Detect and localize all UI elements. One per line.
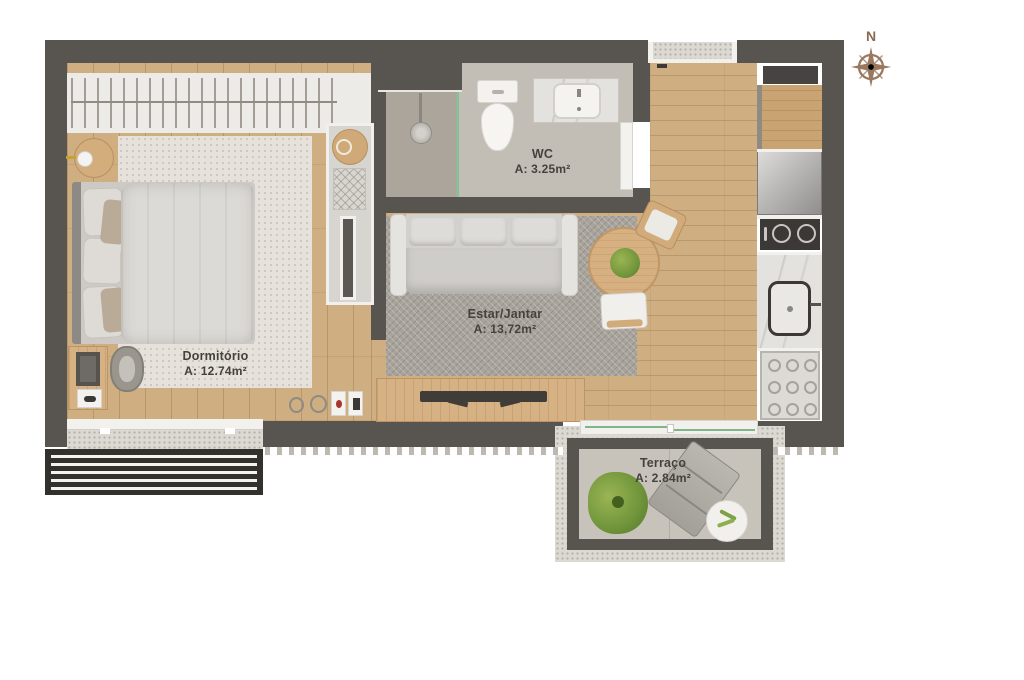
sawtooth-trim (773, 447, 838, 455)
room-name: WC (532, 146, 553, 162)
door-mullion (667, 424, 674, 433)
laptop-icon (76, 352, 100, 386)
stool-seat (119, 356, 135, 382)
room-label-estar: Estar/Jantar A: 13,72m² (440, 306, 570, 337)
cooktop-icon (760, 219, 820, 250)
sawtooth-trim (265, 447, 563, 455)
top-wall-left (45, 40, 648, 63)
wardrobe-rail (71, 101, 337, 103)
rack-ring (786, 381, 799, 394)
burner (772, 224, 791, 243)
sprig (717, 518, 735, 528)
room-name: Terraço (640, 455, 686, 471)
wardrobe-hangers-icon (71, 78, 337, 128)
drain (787, 306, 793, 312)
louver-grille-icon (45, 449, 263, 495)
dining-chair-icon (600, 292, 648, 330)
flush-button (492, 90, 504, 94)
sink-basin-icon (553, 83, 601, 119)
kitchen-cabinet-icon (757, 85, 822, 151)
ledge-bracket (100, 428, 110, 434)
rack-ring (804, 403, 817, 416)
entry-door-handle (657, 64, 667, 68)
fridge-icon (757, 151, 822, 215)
shower-arm (419, 93, 422, 125)
plant-center (612, 496, 624, 508)
room-label-terraco: Terraço A: 2.84m² (604, 455, 722, 486)
shower-shaft (378, 63, 462, 92)
compass-rose-icon: N (843, 28, 899, 98)
duvet-icon (121, 183, 255, 344)
ledge-bracket (225, 428, 235, 434)
room-area: A: 2.84m² (635, 471, 691, 486)
rack-ring (804, 381, 817, 394)
stool-icon (110, 346, 144, 392)
room-area: A: 12.74m² (184, 364, 247, 379)
burner (797, 224, 816, 243)
cooktop-control (764, 227, 767, 241)
room-label-dormitorio: Dormitório A: 12.74m² (148, 348, 283, 379)
rack-ring (786, 359, 799, 372)
lamp-icon (77, 151, 93, 167)
right-wall (822, 40, 844, 447)
sofa-cushion (460, 218, 507, 246)
sofa-cushion (409, 218, 456, 246)
louver-slats (51, 454, 257, 490)
room-area: A: 13,72m² (474, 322, 537, 337)
bottom-wall-mid (262, 421, 563, 447)
left-wall (45, 40, 67, 447)
entry-threshold (653, 59, 732, 63)
sofa-arm-right (561, 214, 578, 296)
room-area: A: 3.25m² (515, 162, 571, 177)
table-plant-icon (610, 248, 640, 278)
glass-pane (585, 426, 670, 428)
rack-ring (768, 381, 781, 394)
shower-head-icon (410, 122, 432, 144)
compass-north-label: N (866, 28, 876, 44)
room-name: Estar/Jantar (468, 306, 543, 322)
tray-item (84, 396, 96, 402)
wc-south-wall (371, 197, 650, 213)
wc-door-leaf (620, 122, 633, 190)
shower-glass-partition (456, 92, 459, 197)
lamp-arm (66, 156, 76, 159)
room-label-wc: WC A: 3.25m² (495, 146, 590, 177)
dark-vase (353, 398, 360, 410)
counter-divider (757, 149, 822, 152)
red-vase (336, 400, 342, 408)
floor-plan-canvas: Dormitório A: 12.74m² WC A: 3.25m² (0, 0, 1024, 680)
rack-ring (804, 359, 817, 372)
compass-star (848, 44, 894, 90)
wire-decor-icon (310, 395, 327, 413)
tv-icon (420, 391, 547, 402)
terrace-table-icon (706, 500, 748, 542)
desk-tray (77, 389, 102, 408)
rack-ring (768, 359, 781, 372)
chair-cushion (643, 208, 679, 242)
drain (577, 107, 581, 111)
shower-shaft-edge (378, 90, 462, 92)
glass-pane (671, 429, 755, 431)
wc-east-wall-upper (633, 63, 650, 122)
kitchen-faucet-icon (810, 303, 821, 306)
sliding-door (580, 420, 758, 435)
sofa-arm-left (390, 214, 407, 296)
tall-mirror-icon (340, 216, 356, 300)
chair-wood-edge (606, 319, 642, 328)
faucet-icon (577, 89, 581, 97)
wire-decor-icon (289, 397, 304, 413)
decor-card-red (331, 391, 346, 416)
sofa-cushion (511, 218, 558, 246)
rack-ring (786, 403, 799, 416)
basket-icon (333, 168, 366, 210)
rack-ring (768, 403, 781, 416)
sofa-seat (406, 248, 562, 294)
bed-headboard (72, 182, 81, 344)
toilet-tank (477, 80, 518, 103)
chair-fold-line (666, 484, 708, 515)
laptop-screen (80, 356, 96, 382)
entry-jamb-right (732, 42, 737, 63)
top-wall-right (737, 40, 830, 63)
room-name: Dormitório (183, 348, 249, 364)
entry-niche (763, 66, 818, 84)
kitchen-sink-icon (768, 281, 811, 336)
dish-rack-icon (760, 351, 820, 420)
accessory-ring (336, 139, 352, 155)
decor-card-dark (348, 391, 363, 416)
